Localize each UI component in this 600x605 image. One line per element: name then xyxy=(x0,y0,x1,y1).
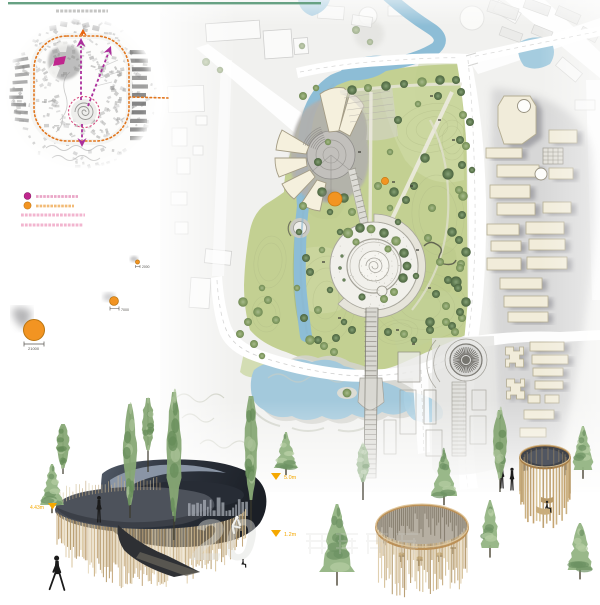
svg-text:5.0m: 5.0m xyxy=(284,475,297,481)
svg-text:2000: 2000 xyxy=(142,265,150,269)
svg-text:20: 20 xyxy=(191,508,257,573)
svg-text:1.2m: 1.2m xyxy=(284,532,297,538)
svg-text:21000: 21000 xyxy=(28,346,40,351)
svg-text:4.43m: 4.43m xyxy=(30,505,44,511)
svg-text:7000: 7000 xyxy=(121,308,129,312)
